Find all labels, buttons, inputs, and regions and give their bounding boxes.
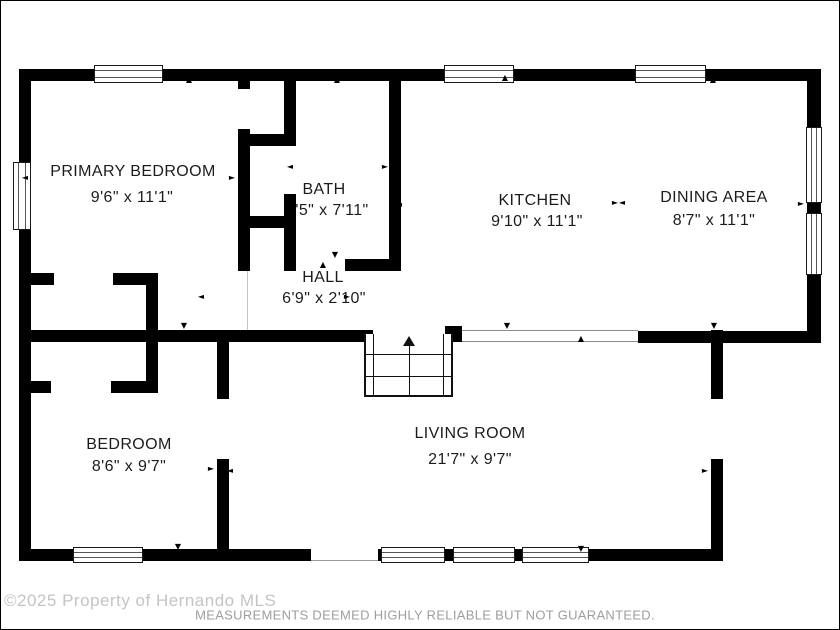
- dimension-arrow-icon: ◄: [227, 467, 233, 475]
- window-dining-right-1: [806, 127, 822, 203]
- wall-bedroom-east-upper: [217, 330, 229, 399]
- wall-bath-east: [389, 79, 401, 263]
- dimension-arrow-icon: ▲: [320, 261, 326, 269]
- dimension-arrow-icon: ▼: [578, 545, 584, 553]
- wall-closet-bottom-a: [29, 381, 51, 393]
- dimension-arrow-icon: ◄: [287, 163, 293, 171]
- room-dims-hall: 6'9" x 2'10": [282, 290, 366, 308]
- dimension-arrow-icon: ▲: [578, 335, 584, 343]
- dimension-arrow-icon: ►: [344, 293, 350, 301]
- wall-bath-south: [345, 259, 401, 271]
- room-label-primary-bedroom: PRIMARY BEDROOM: [50, 163, 215, 181]
- dimension-arrow-icon: ◄: [22, 174, 28, 182]
- window-primary-bedroom-top: [94, 65, 163, 83]
- room-label-bath: BATH: [302, 181, 345, 199]
- wall-mid-right: [638, 331, 821, 343]
- dimension-arrow-icon: ▲: [710, 76, 716, 84]
- window-dining-top: [635, 65, 706, 83]
- cased-opening-kitchen-living: [462, 330, 638, 342]
- room-dims-living: 21'7" x 9'7": [428, 451, 512, 469]
- dimension-arrow-icon: ◄: [21, 466, 27, 474]
- dimension-arrow-icon: ▲: [334, 76, 340, 84]
- room-label-living: LIVING ROOM: [414, 425, 525, 443]
- dimension-arrow-icon: ▼: [504, 322, 510, 330]
- wall-exterior-left: [19, 69, 31, 561]
- window-living-bottom-1: [381, 547, 445, 563]
- window-living-bottom-2: [453, 547, 515, 563]
- wall-exterior-right-upper: [807, 69, 821, 343]
- wall-bath-west-lower: [284, 194, 296, 271]
- dimension-arrow-icon: ◄: [198, 293, 204, 301]
- dimension-arrow-icon: ►: [612, 199, 618, 207]
- stair-rail-left: [373, 334, 374, 395]
- wall-closet-vertical: [146, 273, 158, 393]
- entry-door-opening: [311, 549, 378, 561]
- wall-primary-east-stub: [238, 79, 250, 89]
- stair-rail-right: [443, 334, 444, 395]
- disclaimer: MEASUREMENTS DEEMED HIGHLY RELIABLE BUT …: [195, 608, 655, 623]
- dimension-arrow-icon: ►: [798, 200, 804, 208]
- dimension-arrow-icon: ▲: [186, 76, 192, 84]
- stairs-up-arrow-icon: [403, 336, 415, 346]
- dimension-arrow-icon: ▼: [711, 322, 717, 330]
- room-label-kitchen: KITCHEN: [498, 192, 571, 210]
- floor-plan: PRIMARY BEDROOM 9'6" x 11'1" BATH '5" x …: [0, 0, 840, 630]
- wall-living-east-lower: [711, 459, 723, 561]
- dimension-arrow-icon: ▲: [502, 74, 508, 82]
- dimension-arrow-icon: ◄: [396, 201, 402, 209]
- dimension-arrow-icon: ◄: [619, 199, 625, 207]
- dimension-arrow-icon: ►: [702, 467, 708, 475]
- dimension-arrow-icon: ▼: [181, 322, 187, 330]
- room-label-dining: DINING AREA: [660, 189, 768, 207]
- room-dims-kitchen: 9'10" x 11'1": [491, 213, 583, 231]
- dimension-arrow-icon: ▲: [168, 335, 174, 343]
- dimension-arrow-icon: ►: [208, 465, 214, 473]
- dimension-arrow-icon: ►: [382, 163, 388, 171]
- room-dims-dining: 8'7" x 11'1": [673, 212, 755, 230]
- wall-nook-divider-lower: [238, 216, 296, 228]
- staircase: [364, 334, 453, 397]
- dimension-arrow-icon: ►: [229, 174, 235, 182]
- wall-mid-left: [19, 330, 373, 342]
- room-label-hall: HALL: [302, 269, 344, 287]
- window-bedroom-bottom: [73, 547, 143, 563]
- room-dims-bedroom: 8'6" x 9'7": [92, 458, 166, 476]
- hall-boundary-line: [247, 271, 248, 330]
- wall-nook-divider-upper: [238, 134, 296, 146]
- dimension-arrow-icon: ▼: [332, 251, 338, 259]
- room-dims-primary-bedroom: 9'6" x 11'1": [91, 189, 173, 207]
- wall-closet-bottom-b: [111, 381, 158, 393]
- wall-closet-top-a: [29, 273, 54, 285]
- dimension-arrow-icon: ▼: [175, 543, 181, 551]
- window-dining-right-2: [806, 213, 822, 275]
- stair-center-line: [409, 346, 410, 395]
- wall-living-east-upper: [711, 330, 723, 399]
- room-dims-bath: '5" x 7'11": [295, 202, 368, 220]
- wall-primary-east-main: [238, 129, 250, 271]
- room-label-bedroom: BEDROOM: [86, 436, 171, 454]
